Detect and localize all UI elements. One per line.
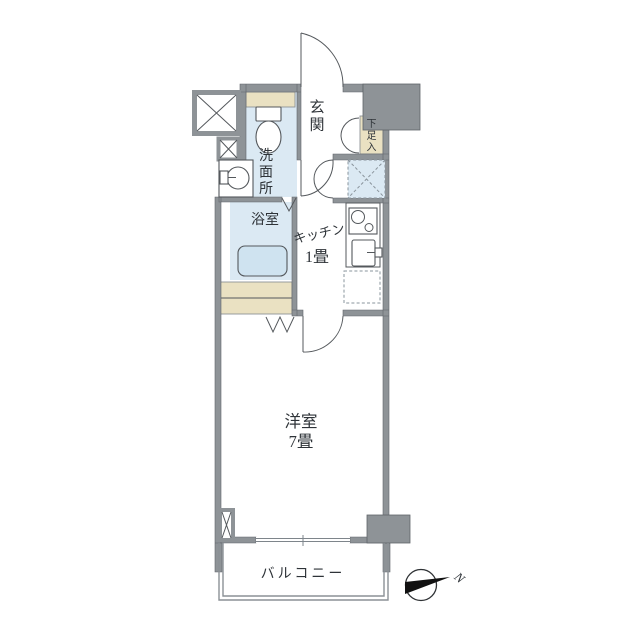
- washroom-shelf: [246, 92, 295, 107]
- room-size-kitchen: 1畳: [305, 249, 329, 266]
- kitchen-counter: [346, 203, 382, 267]
- toilet: [256, 107, 281, 153]
- structural-column-bottom-right: [367, 515, 410, 543]
- room-label-washroom: 洗面所: [259, 148, 273, 197]
- wash-basin: [219, 160, 253, 197]
- label-shoe-cabinet: 下足入: [367, 119, 377, 154]
- hall-door: [301, 160, 333, 196]
- room-label-balcony: バルコニー: [261, 567, 346, 582]
- laundry-closet-doors: [314, 160, 333, 198]
- refrigerator-space: [344, 271, 380, 303]
- pipe-space-large: [195, 93, 239, 134]
- closet-folding-door: [266, 317, 294, 332]
- balcony-window: [256, 535, 350, 546]
- bathtub: [238, 246, 287, 276]
- room-size-western-room: 7畳: [289, 432, 314, 451]
- room-label-bathroom: 浴室: [251, 211, 279, 228]
- stove-icon: [349, 208, 377, 234]
- entrance-door: [301, 33, 343, 87]
- floor-plan: 玄関 洗面所 下足入 浴室 キッチン 1畳 洋室 7畳 バルコニー N: [0, 0, 640, 640]
- sink-icon: [352, 240, 382, 266]
- room-label-genkan: 玄関: [309, 99, 324, 134]
- room-label-western-room: 洋室: [285, 412, 318, 431]
- compass-n-label: N: [451, 568, 469, 587]
- room-door: [303, 316, 343, 352]
- floor-plan-page: 玄関 洗面所 下足入 浴室 キッチン 1畳 洋室 7畳 バルコニー N: [0, 0, 640, 640]
- room-label-kitchen: キッチン: [292, 221, 346, 246]
- washing-machine-space: [348, 160, 385, 198]
- shoe-cabinet-doors: [341, 118, 359, 153]
- toilet-tank: [256, 107, 281, 121]
- pipe-space-small: [219, 139, 239, 160]
- compass: N: [405, 568, 469, 600]
- pipe-space-bottom-left: [220, 510, 233, 540]
